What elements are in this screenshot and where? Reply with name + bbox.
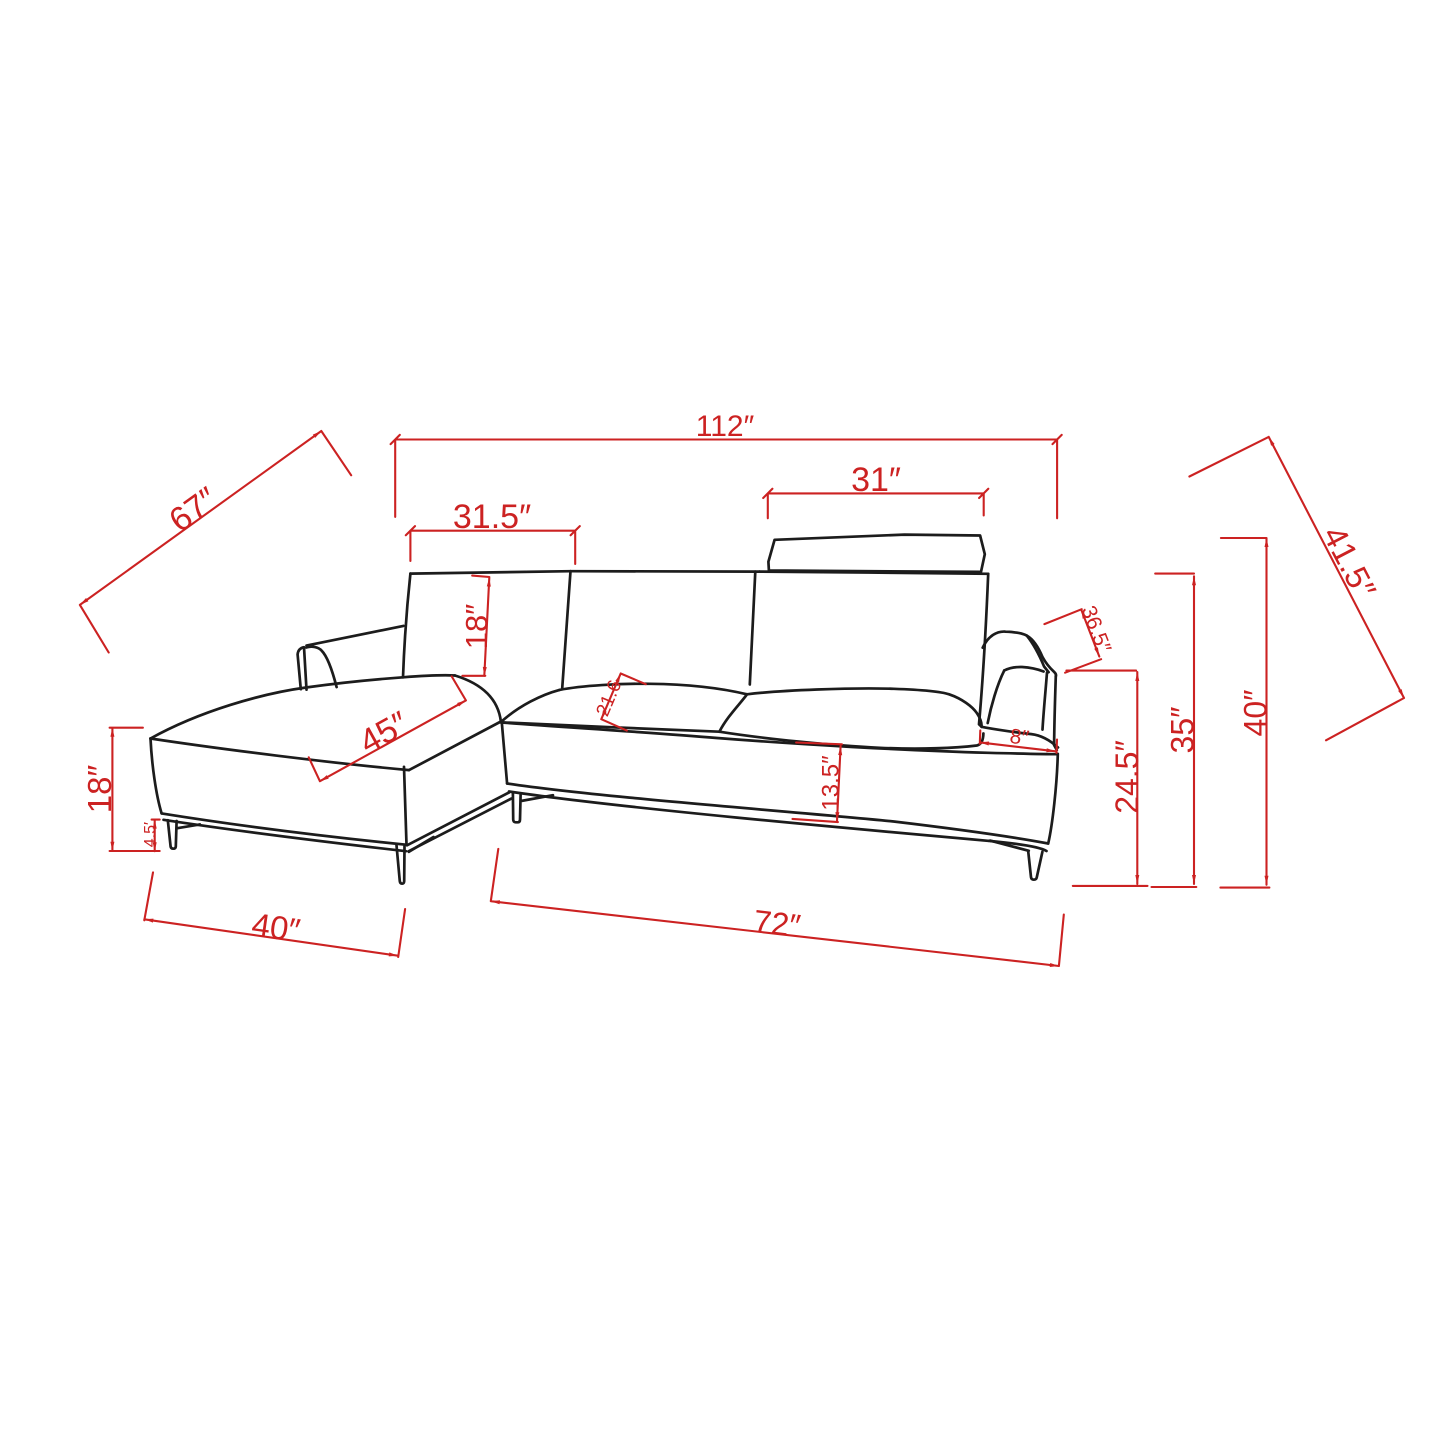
svg-text:18″: 18″ <box>81 764 118 813</box>
svg-text:35″: 35″ <box>1165 707 1201 754</box>
svg-text:72″: 72″ <box>752 903 803 944</box>
svg-text:112″: 112″ <box>696 410 755 443</box>
svg-text:31″: 31″ <box>851 461 901 499</box>
svg-text:24.5″: 24.5″ <box>1109 740 1145 814</box>
svg-text:18″: 18″ <box>459 604 494 649</box>
svg-text:8″: 8″ <box>1008 725 1030 750</box>
svg-text:40″: 40″ <box>1238 690 1274 737</box>
svg-text:13.5″: 13.5″ <box>818 755 845 811</box>
svg-text:40″: 40″ <box>249 906 302 949</box>
svg-text:31.5″: 31.5″ <box>453 498 531 536</box>
